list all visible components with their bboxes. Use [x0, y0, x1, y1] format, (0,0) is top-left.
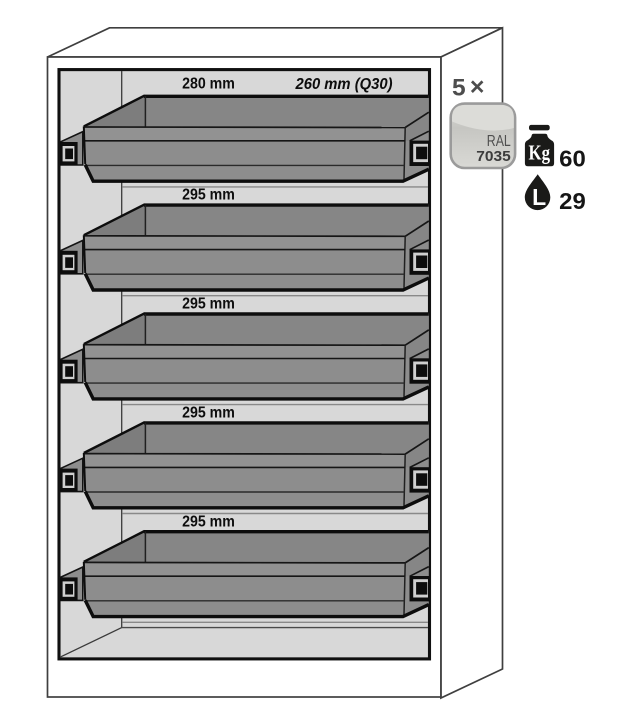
svg-text:L: L — [532, 184, 546, 210]
svg-text:260 mm (Q30): 260 mm (Q30) — [295, 76, 393, 93]
svg-text:280 mm: 280 mm — [182, 76, 235, 93]
svg-text:295 mm: 295 mm — [182, 296, 235, 313]
svg-text:295 mm: 295 mm — [182, 513, 235, 530]
svg-text:5: 5 — [452, 74, 466, 101]
svg-text:60: 60 — [559, 145, 586, 171]
svg-text:29: 29 — [559, 188, 586, 214]
svg-text:295 mm: 295 mm — [182, 405, 235, 422]
svg-text:Kg: Kg — [529, 141, 551, 165]
svg-text:295 mm: 295 mm — [182, 187, 235, 204]
svg-text:7035: 7035 — [476, 148, 511, 165]
svg-text:×: × — [470, 73, 485, 101]
